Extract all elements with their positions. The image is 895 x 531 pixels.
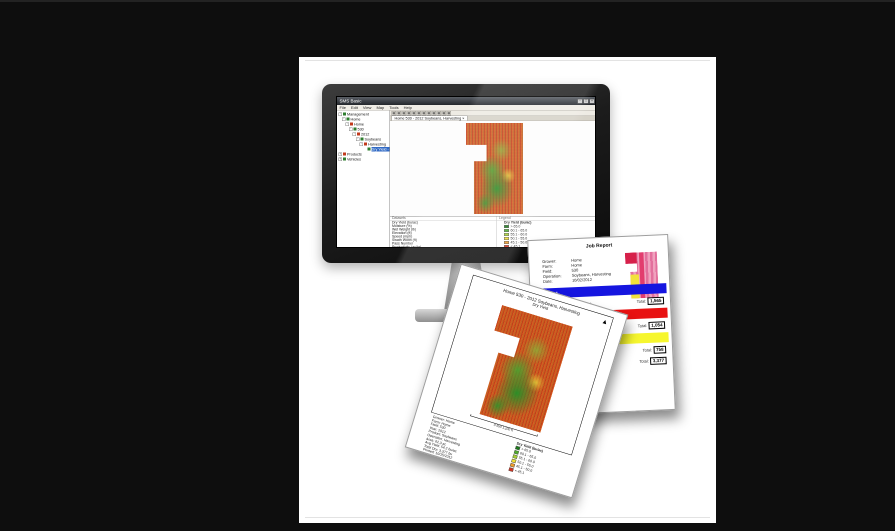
legend-swatch: [504, 237, 509, 240]
datasets-column-header: Datasets: [390, 217, 497, 221]
management-tree-panel: -Management-Home-Home-530-2012-Soybeans-…: [337, 111, 390, 249]
menu-item-tools[interactable]: Tools: [387, 105, 401, 110]
tree-node-icon: [343, 153, 346, 156]
report-total: Total:3,377: [639, 356, 667, 365]
tree-item-label: Harvesting: [368, 142, 386, 147]
legend-label: 55.1 - 60.0: [511, 233, 528, 237]
printed-yield-map: [470, 305, 573, 433]
tree-node-icon: [357, 133, 360, 136]
menu-item-help[interactable]: Help: [401, 105, 414, 110]
window-titlebar: SMS Basic ‒ □ ×: [337, 97, 596, 105]
tree-item-label: Dry Yield - 10/02/2012: [372, 147, 391, 152]
collapse-icon[interactable]: -: [346, 122, 350, 126]
dataset-list: Dry Yield (bu/ac)Moisture (%)Wet Weight …: [390, 221, 497, 249]
report-total-label: Total:: [637, 299, 647, 304]
tree-node-icon: [361, 138, 364, 141]
tree-node-icon: [350, 123, 353, 126]
dataset-row[interactable]: Productivity (ac/hr): [392, 246, 497, 249]
report-info-value: 10/02/2012: [572, 277, 592, 283]
legend-label: < 45.1: [511, 245, 521, 248]
app-window: SMS Basic ‒ □ × FileEditViewMapToolsHelp…: [337, 97, 596, 248]
tree-item-label: Vehicles: [347, 157, 361, 162]
legend-label: 60.1 - 65.0: [511, 229, 528, 233]
legend-label: 50.1 - 55.0: [511, 237, 528, 241]
minimize-icon[interactable]: ‒: [578, 99, 583, 104]
menu-item-view[interactable]: View: [360, 105, 374, 110]
tree-node-icon: [343, 113, 346, 116]
legend-swatch: [504, 229, 509, 232]
report-total-label: Total:: [639, 359, 649, 364]
tree-node-icon: [347, 118, 350, 121]
legend-swatch: [504, 245, 509, 248]
menu-item-edit[interactable]: Edit: [348, 105, 360, 110]
collapse-icon[interactable]: -: [360, 142, 364, 146]
yield-map[interactable]: [466, 123, 523, 214]
stage: SMS Basic ‒ □ × FileEditViewMapToolsHelp…: [0, 0, 895, 531]
legend-swatch: [504, 225, 509, 228]
window-title: SMS Basic: [340, 99, 577, 104]
tree-item-label: Products: [347, 152, 362, 157]
menu-item-file[interactable]: File: [337, 105, 348, 110]
main-pane: ▦▦▦▦▦▦▦▦▦▦▦▦ Home 530 - 2012 Soybeans, H…: [390, 111, 596, 249]
expand-icon[interactable]: +: [339, 157, 343, 161]
report-total-value: 1,054: [649, 321, 666, 329]
tree-item-label: 2012: [361, 132, 369, 137]
collapse-icon[interactable]: -: [356, 137, 360, 141]
app-body: -Management-Home-Home-530-2012-Soybeans-…: [337, 111, 596, 249]
minimap-red-region: [625, 252, 637, 264]
map-view[interactable]: [390, 121, 596, 216]
legend-column-header: Legend: [497, 217, 511, 221]
tree-item-label: Management: [347, 112, 369, 117]
report-total: Total:1,565: [637, 297, 665, 306]
menu-item-map[interactable]: Map: [374, 105, 387, 110]
report-total-value: 758: [653, 345, 666, 353]
report-info-block: Grower:HomeFarm:HomeField:530Operation:S…: [542, 257, 611, 285]
legend-swatch: [504, 233, 509, 236]
legend-label: 45.1 - 50.0: [511, 241, 528, 245]
report-total-value: 1,565: [648, 297, 665, 305]
report-info-label: Date:: [543, 278, 572, 284]
expand-icon[interactable]: +: [339, 152, 343, 156]
close-icon[interactable]: ×: [590, 99, 595, 104]
report-total-label: Total:: [638, 323, 648, 328]
monitor-screen: SMS Basic ‒ □ × FileEditViewMapToolsHelp…: [336, 96, 596, 248]
collapse-icon[interactable]: -: [349, 127, 353, 131]
tree-node-icon: [343, 158, 346, 161]
report-total-value: 3,377: [650, 356, 667, 364]
legend-swatch: [504, 241, 509, 244]
map-tab[interactable]: Home 530 - 2012 Soybeans, Harvesting ×: [392, 116, 468, 121]
tree-item-label: Home: [351, 117, 361, 122]
tree-node-icon: [368, 148, 371, 151]
legend-label: > 65.0: [511, 225, 521, 229]
tree-node-icon: [364, 143, 367, 146]
white-canvas: SMS Basic ‒ □ × FileEditViewMapToolsHelp…: [299, 57, 716, 523]
legend-swatch: [508, 467, 513, 472]
collapse-icon[interactable]: -: [339, 112, 343, 116]
tree-item-label: 530: [358, 127, 364, 132]
tree-item-label: Soybeans: [365, 137, 382, 142]
report-total: Total:758: [642, 345, 666, 354]
report-total-label: Total:: [642, 348, 652, 353]
report-total: Total:1,054: [638, 321, 666, 330]
maximize-icon[interactable]: □: [584, 99, 589, 104]
collapse-icon[interactable]: -: [342, 117, 346, 121]
monitor-bezel: SMS Basic ‒ □ × FileEditViewMapToolsHelp…: [322, 84, 610, 263]
tree-item[interactable]: +Vehicles: [337, 157, 390, 162]
tree-item-label: Home: [354, 122, 364, 127]
tree-node-icon: [354, 128, 357, 131]
collapse-icon[interactable]: -: [353, 132, 357, 136]
